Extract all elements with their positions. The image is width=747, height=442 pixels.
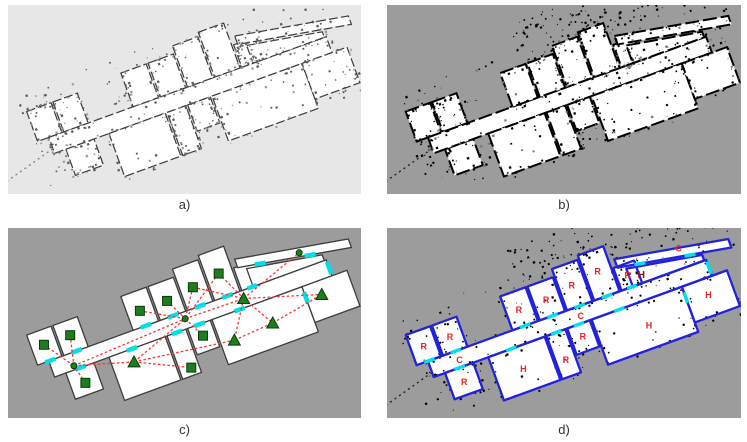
caption-c: c) [8, 422, 361, 438]
map-canvas-c [8, 228, 361, 418]
svg-text:C: C [675, 244, 682, 254]
svg-text:R: R [516, 305, 523, 315]
map-canvas-b [387, 5, 741, 194]
svg-text:R: R [543, 295, 550, 305]
svg-text:R: R [420, 342, 427, 352]
map-canvas-d: RRRCCRRRRRHRRHHCH [387, 228, 741, 418]
svg-text:R: R [580, 332, 587, 342]
panel-a-occupancy-grid-map [8, 5, 361, 194]
svg-text:C: C [456, 355, 463, 365]
svg-text:R: R [594, 267, 601, 277]
svg-text:R: R [624, 271, 631, 281]
panel-b-thresholded-map [387, 5, 741, 194]
panel-d-segmented-map: RRRCCRRRRRHRRHHCH [387, 228, 741, 418]
map-canvas-a [8, 5, 361, 194]
panel-c-topology-graph-map [8, 228, 361, 418]
svg-text:R: R [447, 332, 454, 342]
svg-text:H: H [705, 290, 712, 300]
caption-b: b) [387, 197, 741, 213]
caption-a: a) [8, 197, 361, 213]
svg-text:H: H [520, 364, 527, 374]
svg-text:R: R [563, 355, 570, 365]
svg-text:C: C [578, 311, 585, 321]
svg-text:R: R [461, 377, 468, 387]
svg-text:H: H [646, 320, 653, 330]
four-panel-map-figure: RRRCCRRRRRHRRHHCH a) b) c) d) [0, 0, 747, 442]
svg-text:R: R [568, 280, 575, 290]
caption-d: d) [387, 422, 741, 438]
svg-text:H: H [638, 269, 646, 281]
